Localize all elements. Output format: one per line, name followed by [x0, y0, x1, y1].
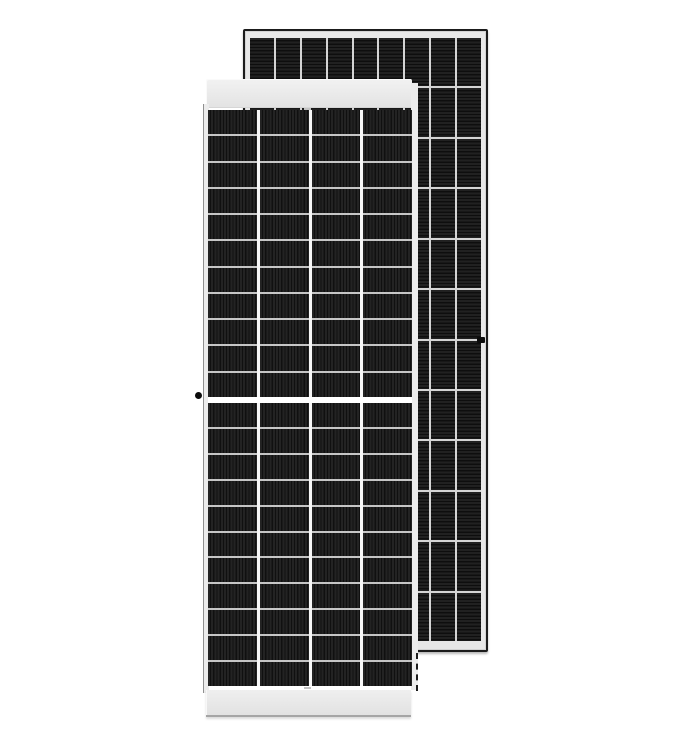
solar-cell [363, 373, 412, 397]
solar-cell [260, 429, 309, 453]
cell-column [363, 403, 412, 686]
solar-cell [260, 507, 309, 531]
solar-cell [363, 241, 412, 265]
solar-cell [208, 584, 257, 608]
front-panel-right-edge-shadow [414, 653, 418, 691]
solar-cell [208, 610, 257, 634]
solar-cell [457, 593, 481, 641]
solar-cell [312, 320, 361, 344]
solar-cell [208, 403, 257, 427]
solar-cell [312, 346, 361, 370]
solar-cell [208, 558, 257, 582]
solar-cell [312, 403, 361, 427]
solar-cell [208, 346, 257, 370]
solar-cell [260, 346, 309, 370]
solar-cell [312, 662, 361, 686]
solar-cell [457, 189, 481, 237]
product-photo-stage [0, 0, 684, 748]
solar-cell [208, 268, 257, 292]
solar-cell [260, 403, 309, 427]
solar-cell [457, 38, 481, 86]
solar-cell [363, 455, 412, 479]
solar-cell [363, 584, 412, 608]
solar-cell [431, 88, 455, 136]
solar-cell [260, 610, 309, 634]
solar-cell [260, 241, 309, 265]
solar-cell [208, 507, 257, 531]
solar-cell [457, 240, 481, 288]
solar-cell [363, 189, 412, 213]
solar-cell [260, 294, 309, 318]
solar-cell [457, 542, 481, 590]
solar-cell [431, 341, 455, 389]
solar-cell [260, 533, 309, 557]
solar-cell [208, 189, 257, 213]
solar-cell [457, 391, 481, 439]
solar-cell [312, 268, 361, 292]
front-panel-cell-area [208, 110, 412, 686]
solar-cell [312, 136, 361, 160]
solar-cell [260, 662, 309, 686]
solar-cell [312, 455, 361, 479]
solar-cell [457, 441, 481, 489]
solar-cell [431, 542, 455, 590]
front-cells-lower-half [208, 403, 412, 686]
solar-cell [208, 429, 257, 453]
solar-cell [363, 636, 412, 660]
frame-center-notch-bottom [304, 687, 311, 689]
solar-cell [431, 290, 455, 338]
solar-cell [312, 610, 361, 634]
solar-cell [363, 429, 412, 453]
solar-cell [312, 558, 361, 582]
solar-cell [208, 373, 257, 397]
solar-cell [260, 136, 309, 160]
solar-cell [208, 636, 257, 660]
solar-cell [457, 139, 481, 187]
solar-cell [260, 481, 309, 505]
cell-column [312, 110, 361, 397]
cell-column [312, 403, 361, 686]
solar-cell [312, 215, 361, 239]
solar-cell [260, 455, 309, 479]
solar-cell [260, 110, 309, 134]
solar-cell [363, 294, 412, 318]
solar-cell [208, 215, 257, 239]
cell-column [260, 110, 309, 397]
solar-cell [260, 636, 309, 660]
solar-cell [363, 403, 412, 427]
solar-cell [363, 507, 412, 531]
solar-cell [312, 294, 361, 318]
solar-cell [260, 373, 309, 397]
cell-column [208, 110, 257, 397]
cell-column [260, 403, 309, 686]
solar-cell [431, 593, 455, 641]
solar-cell [312, 507, 361, 531]
solar-cell [457, 88, 481, 136]
solar-cell [208, 163, 257, 187]
solar-cell [363, 662, 412, 686]
solar-cell [312, 481, 361, 505]
front-panel-bottom-frame [206, 690, 411, 717]
solar-cell [260, 268, 309, 292]
solar-cell [312, 533, 361, 557]
solar-cell [208, 136, 257, 160]
solar-cell [260, 584, 309, 608]
solar-cell [260, 320, 309, 344]
solar-cell [363, 215, 412, 239]
solar-cell [208, 294, 257, 318]
solar-cell [208, 110, 257, 134]
solar-cell [363, 558, 412, 582]
solar-cell [260, 189, 309, 213]
solar-cell [431, 139, 455, 187]
solar-cell [312, 110, 361, 134]
solar-cell [208, 455, 257, 479]
solar-cell [312, 636, 361, 660]
solar-cell [260, 215, 309, 239]
solar-cell [363, 481, 412, 505]
solar-cell [363, 136, 412, 160]
front-frame-grounding-dot [195, 392, 202, 399]
solar-cell [208, 241, 257, 265]
front-panel-top-frame [206, 79, 412, 108]
solar-cell [312, 429, 361, 453]
cell-column [363, 110, 412, 397]
solar-cell [431, 492, 455, 540]
solar-cell [260, 163, 309, 187]
solar-cell [431, 38, 455, 86]
solar-cell [457, 492, 481, 540]
solar-cell [363, 610, 412, 634]
solar-cell [431, 189, 455, 237]
rear-frame-grounding-dot [477, 337, 485, 343]
solar-cell [363, 110, 412, 134]
solar-cell [312, 163, 361, 187]
solar-cell [208, 533, 257, 557]
solar-cell [312, 584, 361, 608]
solar-cell [431, 240, 455, 288]
solar-cell [431, 391, 455, 439]
front-panel-right-frame [411, 83, 418, 690]
solar-cell [312, 241, 361, 265]
front-cells-upper-half [208, 110, 412, 397]
solar-cell [312, 373, 361, 397]
frame-center-notch-top [304, 108, 311, 110]
solar-cell [363, 163, 412, 187]
solar-cell [457, 290, 481, 338]
solar-cell [208, 481, 257, 505]
cell-column [208, 403, 257, 686]
front-solar-panel [203, 79, 418, 718]
solar-cell [363, 320, 412, 344]
solar-cell [208, 662, 257, 686]
solar-cell [363, 346, 412, 370]
solar-cell [260, 558, 309, 582]
solar-cell [363, 268, 412, 292]
solar-cell [312, 189, 361, 213]
solar-cell [208, 320, 257, 344]
solar-cell [431, 441, 455, 489]
solar-cell [363, 533, 412, 557]
solar-cell [457, 341, 481, 389]
